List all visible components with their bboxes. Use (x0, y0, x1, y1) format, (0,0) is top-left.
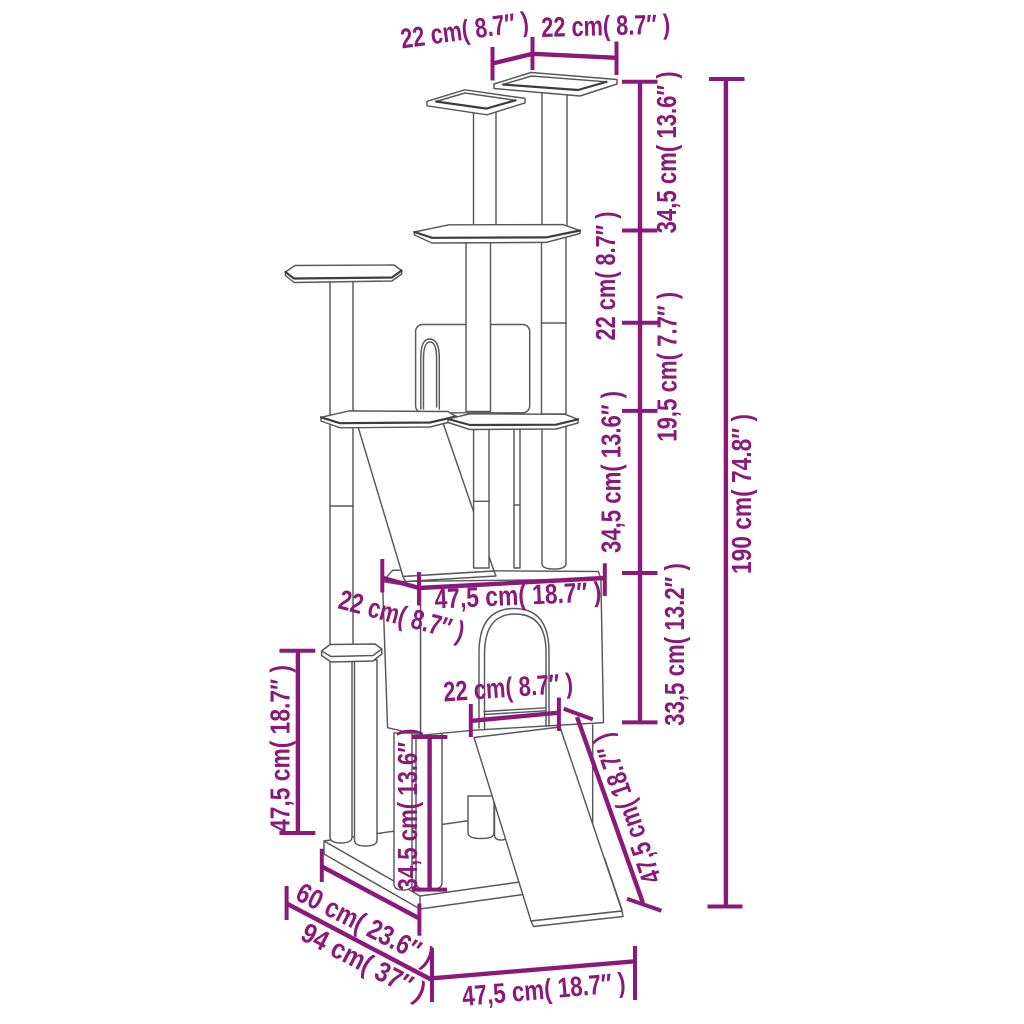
svg-text:47,5 cm( 18.7″ ): 47,5 cm( 18.7″ ) (265, 665, 296, 832)
svg-text:34,5 cm( 13.6″ ): 34,5 cm( 13.6″ ) (652, 71, 683, 233)
svg-text:22 cm( 8.7″ ): 22 cm( 8.7″ ) (591, 212, 622, 341)
svg-text:22 cm( 8.7″ ): 22 cm( 8.7″ ) (541, 9, 671, 44)
svg-text:34,5 cm( 13.6″ ): 34,5 cm( 13.6″ ) (393, 729, 424, 891)
svg-text:19,5 cm( 7.7″ ): 19,5 cm( 7.7″ ) (652, 292, 683, 442)
svg-text:34,5 cm( 13.6″ ): 34,5 cm( 13.6″ ) (596, 391, 627, 553)
svg-text:190 cm( 74.8″ ): 190 cm( 74.8″ ) (727, 414, 758, 574)
svg-text:33,5 cm( 13.2″ ): 33,5 cm( 13.2″ ) (660, 563, 691, 726)
svg-text:22 cm( 8.7″ ): 22 cm( 8.7″ ) (399, 6, 531, 55)
